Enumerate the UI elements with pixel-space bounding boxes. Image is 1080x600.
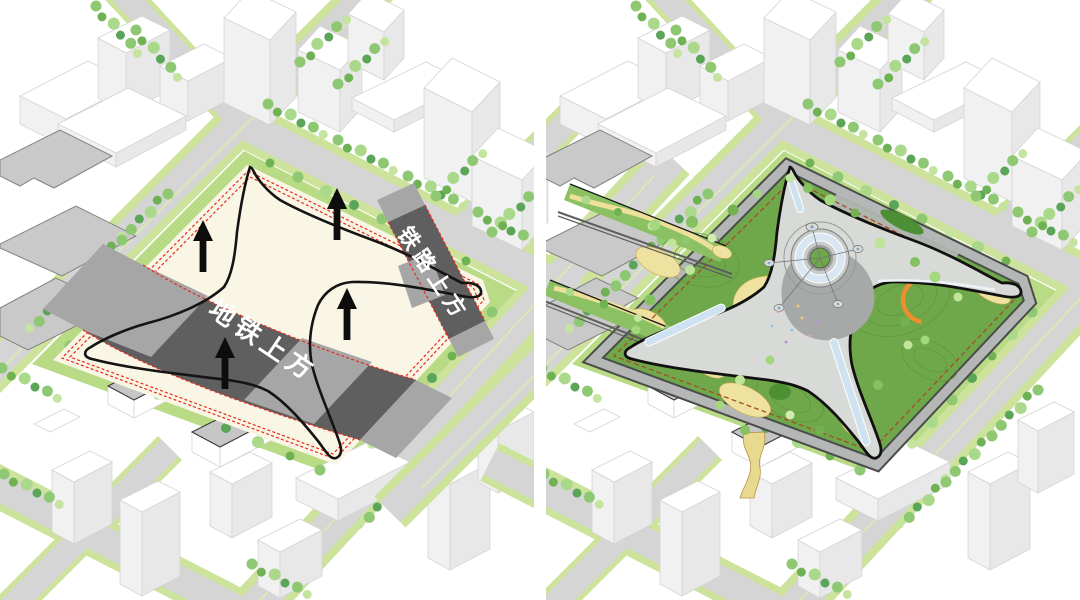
panel-divider: [534, 0, 546, 600]
axonometric-diagram: 地铁上方 铁路上方: [0, 0, 1080, 600]
analysis-site: 地铁上方 铁路上方: [43, 165, 494, 465]
diagram-image: 地铁上方 铁路上方: [0, 0, 1080, 600]
